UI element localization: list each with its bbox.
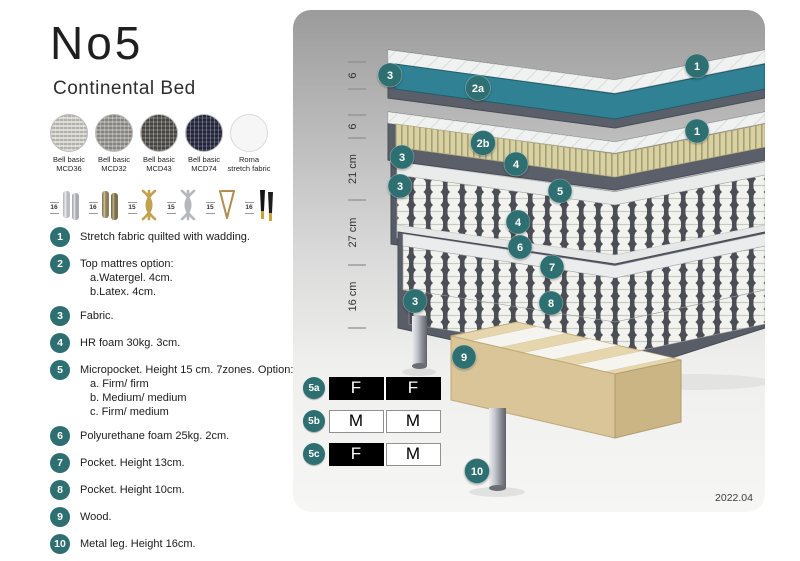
legend-text-block: Micropocket. Height 15 cm. 7zones. Optio… xyxy=(80,360,293,419)
svg-text:2a: 2a xyxy=(472,83,485,95)
legend-text: Pocket. Height 10cm. xyxy=(80,480,185,497)
svg-text:3: 3 xyxy=(399,152,405,164)
diagram-marker-6: 6 xyxy=(508,235,532,259)
page-subtitle: Continental Bed xyxy=(53,78,196,100)
diagram-marker-3: 3 xyxy=(390,145,414,169)
legend-subitem: a. Firm/ firm xyxy=(90,377,293,391)
legend-number-badge: 7 xyxy=(50,453,70,473)
leg-glyph-twist-silver-icon xyxy=(178,188,198,227)
diagram-marker-4: 4 xyxy=(504,152,528,176)
firmness-cells: FM xyxy=(329,443,441,466)
legend-text: Metal leg. Height 16cm. xyxy=(80,534,196,551)
firmness-row-badge: 5b xyxy=(303,410,325,432)
ruler-label: 16 cm xyxy=(347,282,359,312)
firmness-row-5b: 5bMM xyxy=(303,409,441,433)
firmness-cell: M xyxy=(386,410,441,433)
fabric-swatch-label: Bell basicMCD43 xyxy=(143,156,175,173)
legend-text-block: Wood. xyxy=(80,507,112,527)
fabric-swatch-label: Bell basicMCD36 xyxy=(53,156,85,173)
svg-text:3: 3 xyxy=(412,296,418,308)
fabric-swatch-stretch-fabric: Romastretch fabric xyxy=(228,114,270,173)
svg-text:3: 3 xyxy=(387,70,393,82)
page-title: No5 xyxy=(50,16,143,70)
legend-item-7: 7Pocket. Height 13cm. xyxy=(50,453,296,473)
legend-number-badge: 6 xyxy=(50,426,70,446)
firmness-row-5a: 5aFF xyxy=(303,376,441,400)
diagram-marker-9: 9 xyxy=(452,345,476,369)
product-sheet: { "colors": { "accent": "#2e6f71", "wate… xyxy=(0,0,800,533)
firmness-row-badge: 5a xyxy=(303,377,325,399)
legend-text: Wood. xyxy=(80,507,112,524)
firmness-row-badge: 5c xyxy=(303,443,325,465)
firmness-cell: F xyxy=(329,377,384,400)
legend-number-badge: 1 xyxy=(50,227,70,247)
legend-subitem: b. Medium/ medium xyxy=(90,391,293,405)
diagram-marker-8: 8 xyxy=(539,291,563,315)
svg-text:1: 1 xyxy=(694,126,700,138)
legend-number-badge: 8 xyxy=(50,480,70,500)
leg-height-value: 15 xyxy=(128,203,135,213)
leg-height-measure: 16 xyxy=(88,202,99,214)
leg-option-2: 16 xyxy=(85,188,122,227)
measure-dash xyxy=(128,213,137,214)
leg-height-measure: 15 xyxy=(127,202,138,214)
fabric-swatch-mcd36: Bell basicMCD36 xyxy=(48,114,90,173)
svg-text:7: 7 xyxy=(549,262,555,274)
leg-height-measure: 16 xyxy=(244,202,255,214)
legend-text-block: Stretch fabric quilted with wadding. xyxy=(80,227,250,247)
diagram-marker-5: 5 xyxy=(548,179,572,203)
diagram-marker-7: 7 xyxy=(540,255,564,279)
ruler-label: 6 xyxy=(347,72,359,78)
legend-number-badge: 4 xyxy=(50,333,70,353)
svg-text:3: 3 xyxy=(397,181,403,193)
diagram-marker-3: 3 xyxy=(403,289,427,313)
leg-height-measure: 16 xyxy=(49,202,60,214)
leg-height-value: 16 xyxy=(245,203,252,213)
legend-item-8: 8Pocket. Height 10cm. xyxy=(50,480,296,500)
leg-height-value: 15 xyxy=(206,203,213,213)
fabric-swatch-circle xyxy=(230,114,268,152)
legend-text-block: Fabric. xyxy=(80,306,114,326)
dimension-ruler: 6 6 21 cm 27 cm 16 cm xyxy=(347,62,366,328)
legend-item-2: 2Top mattres option:a.Watergel. 4cm.b.La… xyxy=(50,254,296,299)
diagram-marker-3: 3 xyxy=(388,174,412,198)
leg-height-measure: 15 xyxy=(205,202,216,214)
measure-dash xyxy=(245,213,254,214)
fabric-swatch-mcd43: Bell basicMCD43 xyxy=(138,114,180,173)
svg-text:10: 10 xyxy=(471,466,483,478)
svg-text:6: 6 xyxy=(517,242,523,254)
legend-text: Polyurethane foam 25kg. 2cm. xyxy=(80,426,229,443)
leg-option-1: 16 xyxy=(46,188,83,227)
firmness-cell: M xyxy=(329,410,384,433)
legend-item-1: 1Stretch fabric quilted with wadding. xyxy=(50,227,296,247)
leg-glyph-hairpin-gold-icon xyxy=(217,188,237,227)
legend-item-5: 5Micropocket. Height 15 cm. 7zones. Opti… xyxy=(50,360,296,419)
measure-dash xyxy=(89,213,98,214)
fabric-swatch-label: Bell basicMCD74 xyxy=(188,156,220,173)
ruler-label: 21 cm xyxy=(347,154,359,184)
fabric-swatch-circle xyxy=(140,114,178,152)
svg-text:5: 5 xyxy=(557,186,563,198)
legend-text: Micropocket. Height 15 cm. 7zones. Optio… xyxy=(80,360,293,377)
fabric-swatch-circle xyxy=(185,114,223,152)
legend-text-block: Top mattres option:a.Watergel. 4cm.b.Lat… xyxy=(80,254,174,299)
legend-item-4: 4HR foam 30kg. 3cm. xyxy=(50,333,296,353)
diagram-marker-2b: 2b xyxy=(471,131,496,156)
legend-text-block: Pocket. Height 10cm. xyxy=(80,480,185,500)
legend-text: Fabric. xyxy=(80,306,114,323)
diagram-marker-1: 1 xyxy=(685,54,709,78)
legend-item-9: 9Wood. xyxy=(50,507,296,527)
leg-option-5: 15 xyxy=(202,188,239,227)
legend-number-badge: 10 xyxy=(50,534,70,554)
legend-text: HR foam 30kg. 3cm. xyxy=(80,333,180,350)
version-label: 2022.04 xyxy=(715,492,753,504)
ruler-label: 27 cm xyxy=(347,218,359,248)
legend-item-3: 3Fabric. xyxy=(50,306,296,326)
diagram-marker-2a: 2a xyxy=(466,76,491,101)
fabric-swatch-circle xyxy=(50,114,88,152)
firmness-row-5c: 5cFM xyxy=(303,442,441,466)
leg-height-value: 16 xyxy=(50,203,57,213)
svg-text:4: 4 xyxy=(513,159,520,171)
floor-shadow xyxy=(402,368,436,376)
legend-item-10: 10Metal leg. Height 16cm. xyxy=(50,534,296,554)
leg-options-row: 161615151516 xyxy=(46,188,278,227)
diagram-marker-4: 4 xyxy=(506,210,530,234)
legend-text-block: Metal leg. Height 16cm. xyxy=(80,534,196,554)
fabric-swatch-circle xyxy=(95,114,133,152)
legend-text-block: Pocket. Height 13cm. xyxy=(80,453,185,473)
legend-subitem: c. Firm/ medium xyxy=(90,405,293,419)
legend-text-block: HR foam 30kg. 3cm. xyxy=(80,333,180,353)
leg-height-value: 15 xyxy=(167,203,174,213)
firmness-cell: F xyxy=(329,443,384,466)
metal-leg-front xyxy=(489,408,506,491)
legend-text: Stretch fabric quilted with wadding. xyxy=(80,227,250,244)
legend-number-badge: 2 xyxy=(50,254,70,274)
leg-height-measure: 15 xyxy=(166,202,177,214)
legend-text: Top mattres option: xyxy=(80,254,174,271)
legend-number-badge: 3 xyxy=(50,306,70,326)
firmness-cells: FF xyxy=(329,377,441,400)
fabric-swatch-label: Bell basicMCD32 xyxy=(98,156,130,173)
legend-number-badge: 9 xyxy=(50,507,70,527)
diagram-panel: 6 6 21 cm 27 cm 16 cm xyxy=(293,10,765,512)
legend-text: Pocket. Height 13cm. xyxy=(80,453,185,470)
firmness-cell: M xyxy=(386,443,441,466)
svg-text:8: 8 xyxy=(548,298,554,310)
leg-glyph-cylinder-silver-icon xyxy=(61,188,81,227)
legend-number-badge: 5 xyxy=(50,360,70,380)
measure-dash xyxy=(206,213,215,214)
leg-option-4: 15 xyxy=(163,188,200,227)
fabric-swatch-label: Romastretch fabric xyxy=(228,156,271,173)
legend-item-6: 6Polyurethane foam 25kg. 2cm. xyxy=(50,426,296,446)
fabric-swatch-mcd74: Bell basicMCD74 xyxy=(183,114,225,173)
leg-option-6: 16 xyxy=(241,188,278,227)
fabric-swatch-mcd32: Bell basicMCD32 xyxy=(93,114,135,173)
firmness-cell: F xyxy=(386,377,441,400)
legend-subitem: a.Watergel. 4cm. xyxy=(90,271,174,285)
measure-dash xyxy=(50,213,59,214)
leg-option-3: 15 xyxy=(124,188,161,227)
legend-subitem: b.Latex. 4cm. xyxy=(90,285,174,299)
leg-glyph-cylinder-bronze-icon xyxy=(100,188,120,227)
leg-glyph-black-gold-icon xyxy=(256,188,276,227)
svg-text:9: 9 xyxy=(461,352,467,364)
measure-dash xyxy=(167,213,176,214)
firmness-cells: MM xyxy=(329,410,441,433)
diagram-marker-3: 3 xyxy=(378,63,402,87)
leg-height-value: 16 xyxy=(89,203,96,213)
diagram-marker-1: 1 xyxy=(685,119,709,143)
legend-text-block: Polyurethane foam 25kg. 2cm. xyxy=(80,426,229,446)
bed-exploded-diagram: 6 6 21 cm 27 cm 16 cm xyxy=(293,10,765,512)
leg-glyph-twist-gold-icon xyxy=(139,188,159,227)
svg-text:1: 1 xyxy=(694,61,700,73)
diagram-marker-10: 10 xyxy=(465,459,490,484)
metal-leg-back xyxy=(412,316,427,369)
legend-list: 1Stretch fabric quilted with wadding.2To… xyxy=(50,227,296,561)
ruler-label: 6 xyxy=(347,123,359,129)
svg-text:4: 4 xyxy=(515,217,522,229)
svg-text:2b: 2b xyxy=(477,138,490,150)
fabric-swatch-row: Bell basicMCD36Bell basicMCD32Bell basic… xyxy=(48,114,270,173)
